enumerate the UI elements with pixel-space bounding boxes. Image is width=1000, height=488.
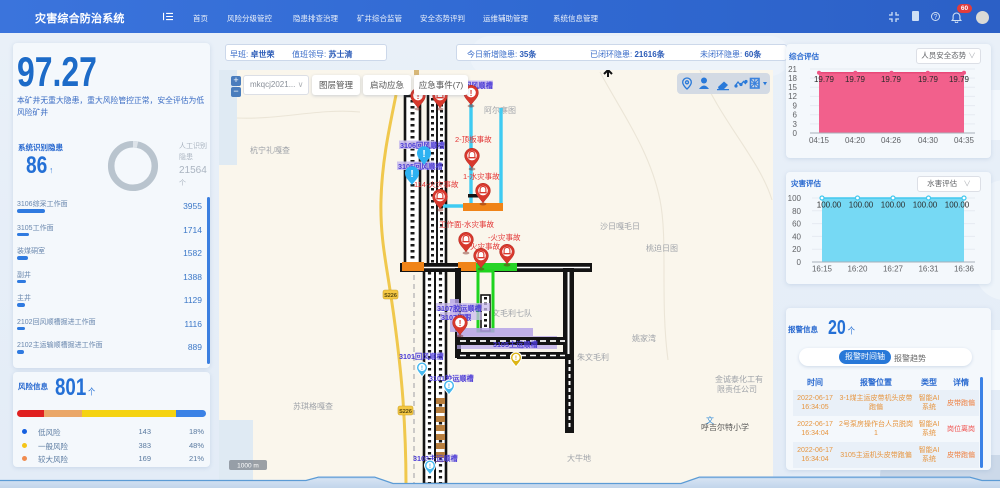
svg-text:限责任公司: 限责任公司 xyxy=(717,384,757,394)
svg-text:姚家湾: 姚家湾 xyxy=(632,333,656,343)
svg-text:-火灾事故: -火灾事故 xyxy=(488,232,521,242)
svg-text:19.79: 19.79 xyxy=(881,75,902,84)
svg-text:0: 0 xyxy=(793,129,798,138)
svg-text:19.79: 19.79 xyxy=(845,75,866,84)
svg-text:19.79: 19.79 xyxy=(949,75,970,84)
svg-text:12: 12 xyxy=(788,92,797,101)
svg-text:04:26: 04:26 xyxy=(881,136,902,145)
svg-text:S226: S226 xyxy=(399,409,412,415)
svg-text:6: 6 xyxy=(793,111,798,120)
svg-text:S226: S226 xyxy=(384,293,397,299)
svg-text:文: 文 xyxy=(706,415,714,425)
svg-text:桃迫日图: 桃迫日图 xyxy=(646,243,678,253)
svg-text:16:27: 16:27 xyxy=(883,265,904,274)
svg-text:100.00: 100.00 xyxy=(817,201,842,210)
svg-text:16:15: 16:15 xyxy=(812,265,833,274)
svg-text:100.00: 100.00 xyxy=(945,201,970,210)
svg-text:2-顶板事故: 2-顶板事故 xyxy=(455,134,492,144)
svg-text:100.00: 100.00 xyxy=(881,201,906,210)
svg-text:0: 0 xyxy=(797,258,802,267)
svg-text:16:31: 16:31 xyxy=(918,265,939,274)
svg-text:沙日嘎毛日: 沙日嘎毛日 xyxy=(600,221,640,231)
svg-text:21: 21 xyxy=(788,65,797,74)
svg-text:文毛利七队: 文毛利七队 xyxy=(492,308,532,318)
svg-text:3107胶运顺槽: 3107胶运顺槽 xyxy=(437,304,483,313)
svg-text:40: 40 xyxy=(792,232,801,241)
svg-text:苏琪格嘎查: 苏琪格嘎查 xyxy=(293,401,333,411)
svg-text:19.79: 19.79 xyxy=(918,75,939,84)
svg-text:04:15: 04:15 xyxy=(809,136,830,145)
svg-text:朱文毛利: 朱文毛利 xyxy=(577,352,609,362)
svg-text:3105回风顺槽: 3105回风顺槽 xyxy=(398,162,444,171)
svg-text:04:30: 04:30 xyxy=(918,136,939,145)
svg-text:19.79: 19.79 xyxy=(814,75,835,84)
svg-text:15: 15 xyxy=(788,83,797,92)
svg-text:工作面-水灾事故: 工作面-水灾事故 xyxy=(439,219,494,229)
svg-text:大牛地: 大牛地 xyxy=(567,453,591,463)
svg-text:3101回风顺槽: 3101回风顺槽 xyxy=(399,352,445,361)
svg-text:100: 100 xyxy=(788,194,802,203)
svg-text:16:20: 16:20 xyxy=(847,265,868,274)
svg-text:1-水灾事故: 1-水灾事故 xyxy=(463,171,500,181)
svg-text:3103主运顺槽: 3103主运顺槽 xyxy=(413,454,459,463)
svg-text:80: 80 xyxy=(792,207,801,216)
svg-text:100.00: 100.00 xyxy=(849,201,874,210)
svg-text:04:20: 04:20 xyxy=(845,136,866,145)
svg-text:100.00: 100.00 xyxy=(913,201,938,210)
svg-text:9: 9 xyxy=(793,102,798,111)
svg-text:3: 3 xyxy=(793,120,798,129)
svg-text:16:36: 16:36 xyxy=(954,265,975,274)
svg-text:20: 20 xyxy=(792,245,801,254)
svg-text:114-火灾事故: 114-火灾事故 xyxy=(414,179,459,189)
svg-text:杭宁礼嘎查: 杭宁礼嘎查 xyxy=(250,145,290,155)
svg-text:金诚泰化工有: 金诚泰化工有 xyxy=(715,374,763,384)
svg-text:18: 18 xyxy=(788,74,797,83)
svg-text:60: 60 xyxy=(792,220,801,229)
svg-text:3105主运顺槽: 3105主运顺槽 xyxy=(493,340,539,349)
svg-text:04:35: 04:35 xyxy=(954,136,975,145)
